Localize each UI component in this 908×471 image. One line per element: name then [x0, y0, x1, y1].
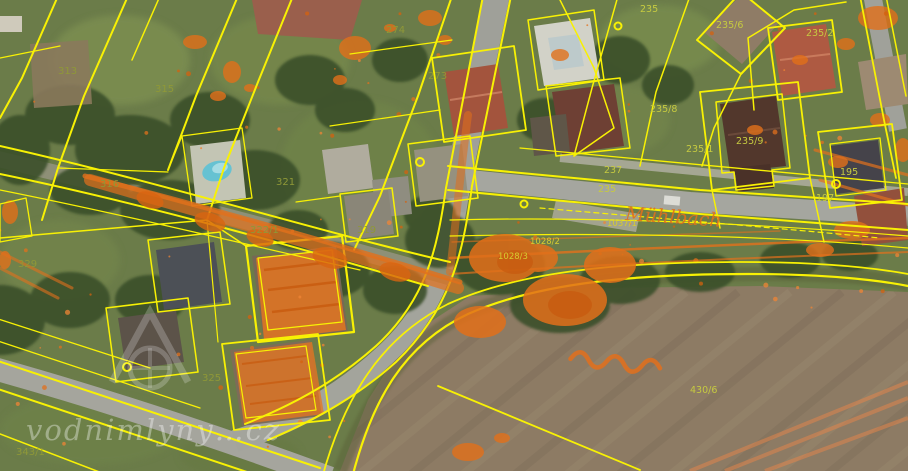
parcel-label-316: 316: [100, 179, 119, 190]
parcel-label-197: 197: [816, 193, 834, 204]
parcel-label-235-b: 235: [598, 184, 616, 195]
parcel-label-315: 315: [155, 84, 174, 95]
parcel-label-235-a: 235: [640, 4, 658, 15]
parcel-label-195: 195: [840, 167, 858, 178]
parcel-label-273: 273: [428, 71, 447, 82]
parcel-label-235-1: 235/1: [686, 144, 713, 155]
parcel-label-325: 325: [202, 373, 221, 384]
parcel-label-274: 274: [386, 25, 405, 36]
parcel-label-235-8: 235/8: [650, 104, 677, 115]
parcel-label-237: 237: [604, 165, 622, 176]
parcel-label-235-9: 235/9: [736, 136, 763, 147]
watermark-text: vodnimlyny…cz: [26, 413, 281, 447]
parcel-label-1028-3: 1028/3: [498, 252, 528, 262]
parcel-label-329: 329: [18, 259, 37, 270]
parcel-label-313: 313: [58, 66, 77, 77]
parcel-label-1028-2: 1028/2: [530, 237, 560, 247]
parcel-label-343-1: 343/1: [16, 447, 45, 458]
parcel-label-319: 319: [357, 225, 376, 236]
map-viewport[interactable]: 313 315 274 273 235 235/6 235/2 235/8 23…: [0, 0, 908, 471]
parcel-label-322-1: 322/1: [250, 225, 279, 236]
parcel-label-235-6: 235/6: [716, 20, 743, 31]
parcel-label-430-6: 430/6: [690, 385, 717, 396]
parcel-label-235-2: 235/2: [806, 28, 833, 39]
car: [664, 195, 681, 205]
cadastral-map-canvas[interactable]: 313 315 274 273 235 235/6 235/2 235/8 23…: [0, 0, 908, 471]
parcel-label-321: 321: [276, 177, 295, 188]
